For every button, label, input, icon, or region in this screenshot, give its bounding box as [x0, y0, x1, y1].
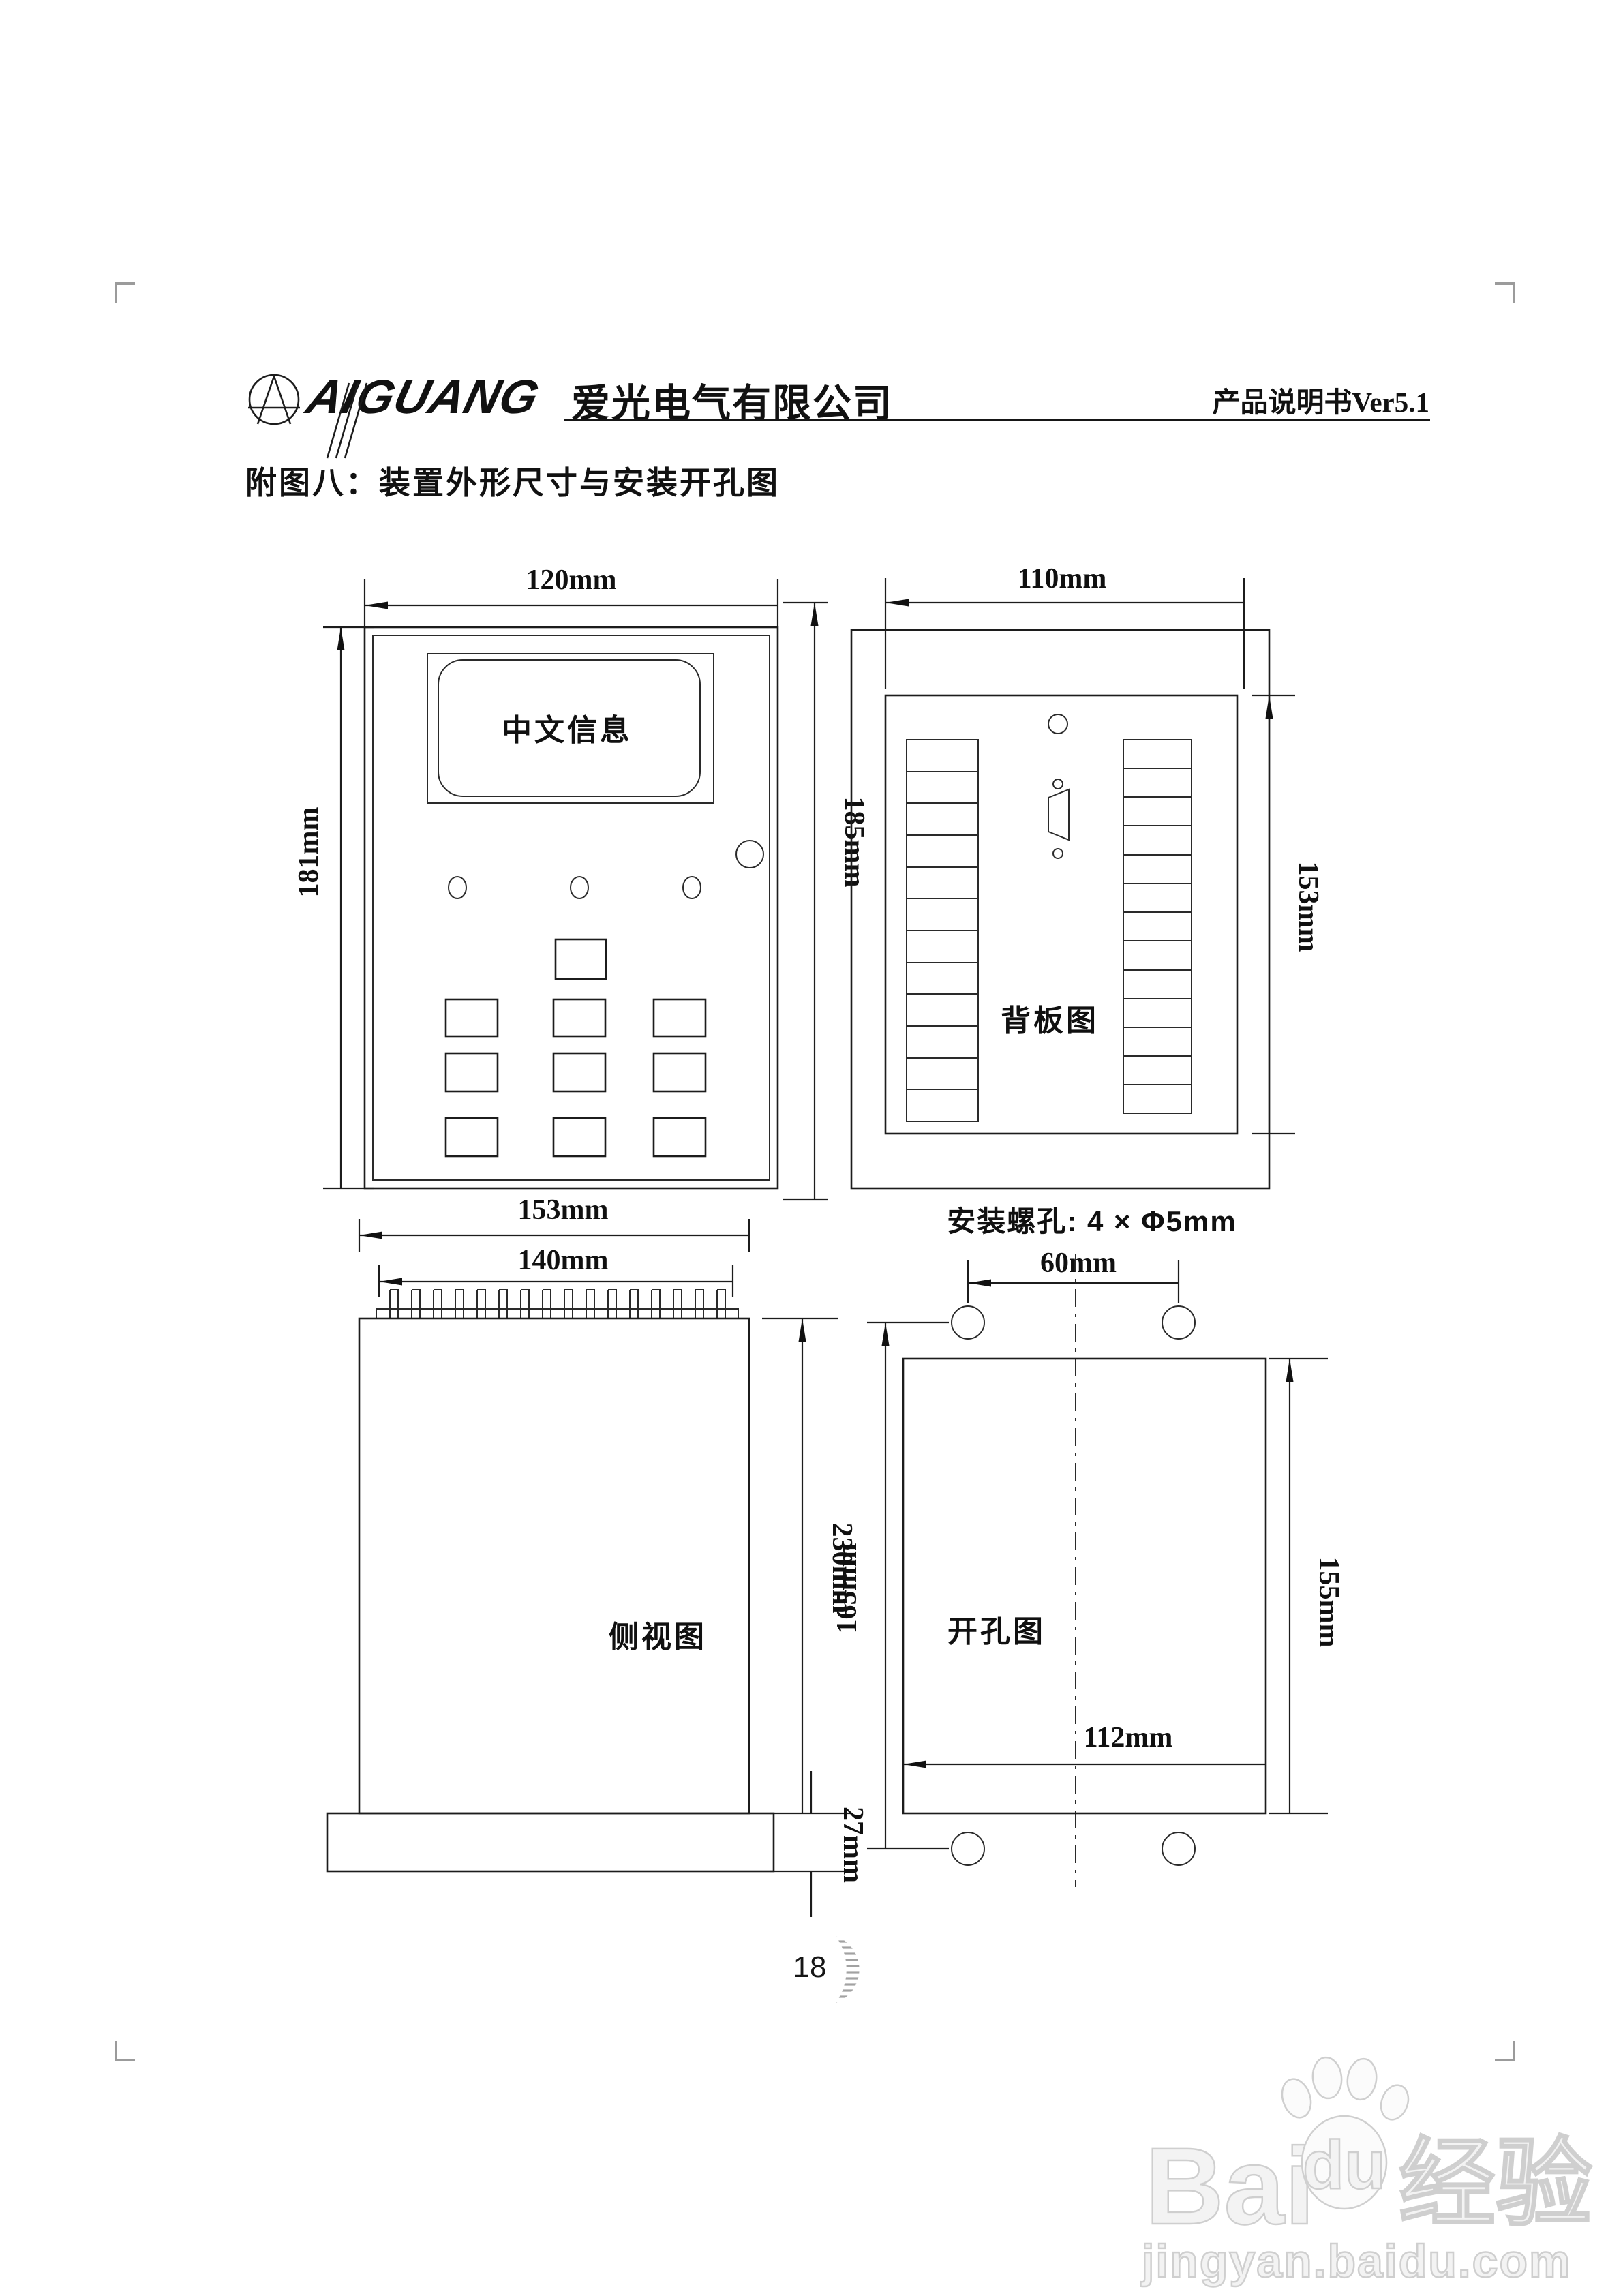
drawing-sheet: 中文信息 120mm 181mm	[0, 0, 1623, 2296]
back-height-dimension: 153mm	[1252, 695, 1324, 1134]
back-view-label: 背板图	[1001, 1004, 1099, 1038]
keypad-button	[654, 1053, 706, 1091]
flange-height-dimension: 27mm	[770, 1771, 868, 1917]
terminal-strip-left	[907, 740, 978, 1121]
back-case	[885, 695, 1237, 1134]
watermark-brand-suffix: 经验	[1399, 2130, 1592, 2238]
cutout-height-dimension-right: 155mm	[1269, 1359, 1344, 1813]
watermark-brand-du: du	[1303, 2127, 1386, 2203]
front-height-dimension-left: 181mm	[293, 627, 374, 1188]
led-indicator	[683, 877, 701, 898]
keypad-button	[556, 939, 606, 979]
keypad-button	[553, 1118, 605, 1156]
keypad-button	[553, 1053, 605, 1091]
back-screw-hole	[1048, 714, 1067, 734]
mounting-hole	[1162, 1832, 1195, 1865]
keypad-button	[553, 999, 605, 1036]
company-logo-icon	[248, 375, 367, 458]
led-indicator	[449, 877, 466, 898]
keypad-button	[654, 999, 706, 1036]
svg-text:153mm: 153mm	[1292, 862, 1324, 952]
led-indicator	[571, 877, 588, 898]
svg-text:185mm: 185mm	[838, 797, 870, 888]
side-body	[359, 1318, 749, 1813]
svg-text:27mm: 27mm	[837, 1807, 868, 1883]
svg-text:155mm: 155mm	[1313, 1557, 1344, 1648]
svg-text:153mm: 153mm	[518, 1194, 609, 1226]
svg-text:112mm: 112mm	[1084, 1722, 1173, 1753]
page-number: 18	[793, 1950, 827, 1984]
terminal-strip-right	[1123, 740, 1192, 1113]
cutout-height-dimension-left: 165mm	[832, 1323, 949, 1849]
cutout-view-label: 开孔图	[947, 1615, 1046, 1648]
screen-text: 中文信息	[502, 714, 633, 747]
svg-text:181mm: 181mm	[293, 807, 324, 898]
watermark-brand: Bai	[1145, 2125, 1315, 2247]
side-view-label: 侧视图	[609, 1620, 707, 1654]
mounting-hole	[952, 1832, 984, 1865]
watermark-url: jingyan.baidu.com	[1140, 2235, 1572, 2287]
svg-text:60mm: 60mm	[1040, 1248, 1117, 1279]
side-outer-width-dimension: 153mm	[359, 1194, 749, 1252]
svg-text:165mm: 165mm	[832, 1543, 863, 1634]
cutout-width-dimension: 112mm	[903, 1722, 1266, 1764]
side-inner-width-dimension: 140mm	[379, 1245, 733, 1297]
keypad-button	[446, 1118, 498, 1156]
reset-hole	[736, 841, 763, 868]
keypad-button	[446, 999, 498, 1036]
manual-page: AIGUANG 爱光电气有限公司 产品说明书Ver5.1 附图八：装置外形尺寸与…	[0, 0, 1623, 2296]
mounting-hole	[952, 1306, 984, 1339]
crescent-decoration	[836, 1936, 860, 2003]
serial-port-connector	[1048, 779, 1069, 858]
front-height-dimension-right: 185mm	[783, 603, 870, 1200]
back-flange	[851, 630, 1269, 1188]
cutout-view-drawing: 安装螺孔: 4 × Φ5mm 60mm 开孔图 165mm 155mm	[832, 1205, 1344, 1887]
front-outer-bezel	[365, 627, 778, 1188]
mounting-hole-note: 安装螺孔: 4 × Φ5mm	[947, 1205, 1237, 1237]
baidu-watermark: Bai du 经验 jingyan.baidu.com	[1140, 2056, 1592, 2287]
back-width-dimension: 110mm	[885, 563, 1244, 689]
mounting-hole	[1162, 1306, 1195, 1339]
side-view-drawing: 153mm 140mm 侧视图 230mm	[327, 1194, 868, 1917]
keypad-button	[654, 1118, 706, 1156]
hole-spacing-dimension: 60mm	[968, 1248, 1179, 1303]
terminal-pins-comb	[376, 1290, 738, 1318]
svg-text:120mm: 120mm	[526, 564, 617, 596]
back-panel-drawing: 背板图 110mm 153mm	[851, 563, 1324, 1188]
svg-text:140mm: 140mm	[518, 1245, 609, 1276]
side-front-flange	[327, 1813, 774, 1871]
front-view-drawing: 中文信息 120mm 181mm	[293, 564, 870, 1200]
front-width-dimension: 120mm	[365, 564, 778, 626]
svg-text:110mm: 110mm	[1018, 563, 1107, 594]
keypad-button	[446, 1053, 498, 1091]
page-footer: 18	[793, 1936, 860, 2003]
